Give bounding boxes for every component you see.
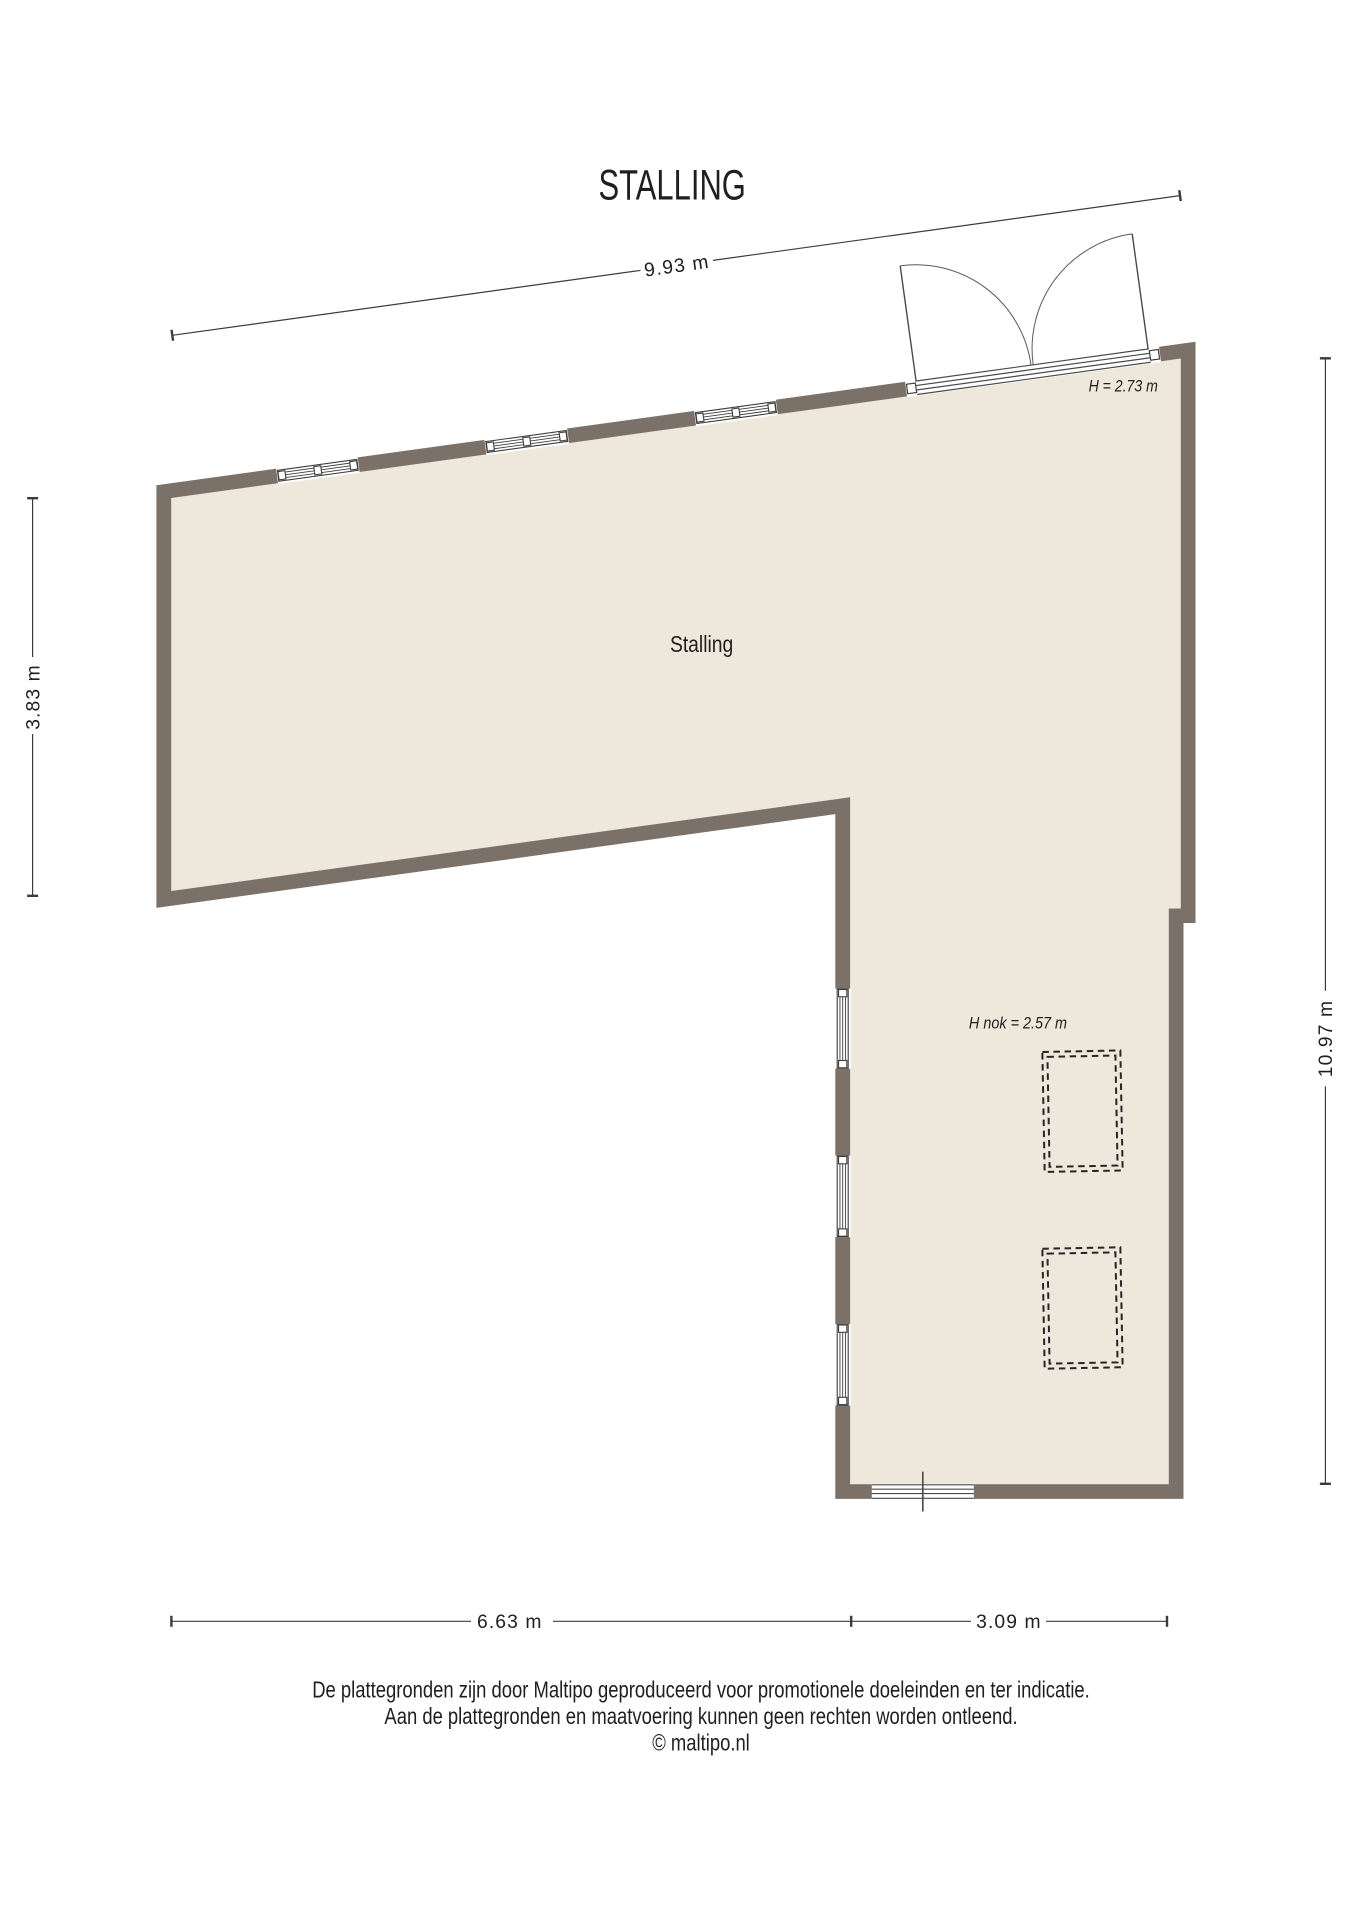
svg-text:H = 2.73 m: H = 2.73 m <box>1089 378 1158 396</box>
svg-text:Aan de plattegronden en maatvo: Aan de plattegronden en maatvoering kunn… <box>384 1704 1017 1729</box>
svg-text:Stalling: Stalling <box>670 632 733 657</box>
svg-text:3.83 m: 3.83 m <box>23 664 44 730</box>
svg-text:10.97 m: 10.97 m <box>1316 1000 1337 1077</box>
svg-text:6.63 m: 6.63 m <box>477 1612 543 1633</box>
svg-text:3.09 m: 3.09 m <box>976 1612 1042 1633</box>
svg-text:© maltipo.nl: © maltipo.nl <box>652 1731 750 1756</box>
svg-text:H nok = 2.57 m: H nok = 2.57 m <box>969 1015 1067 1033</box>
svg-text:De plattegronden zijn door Mal: De plattegronden zijn door Maltipo gepro… <box>312 1678 1090 1703</box>
svg-text:STALLING: STALLING <box>599 160 746 208</box>
